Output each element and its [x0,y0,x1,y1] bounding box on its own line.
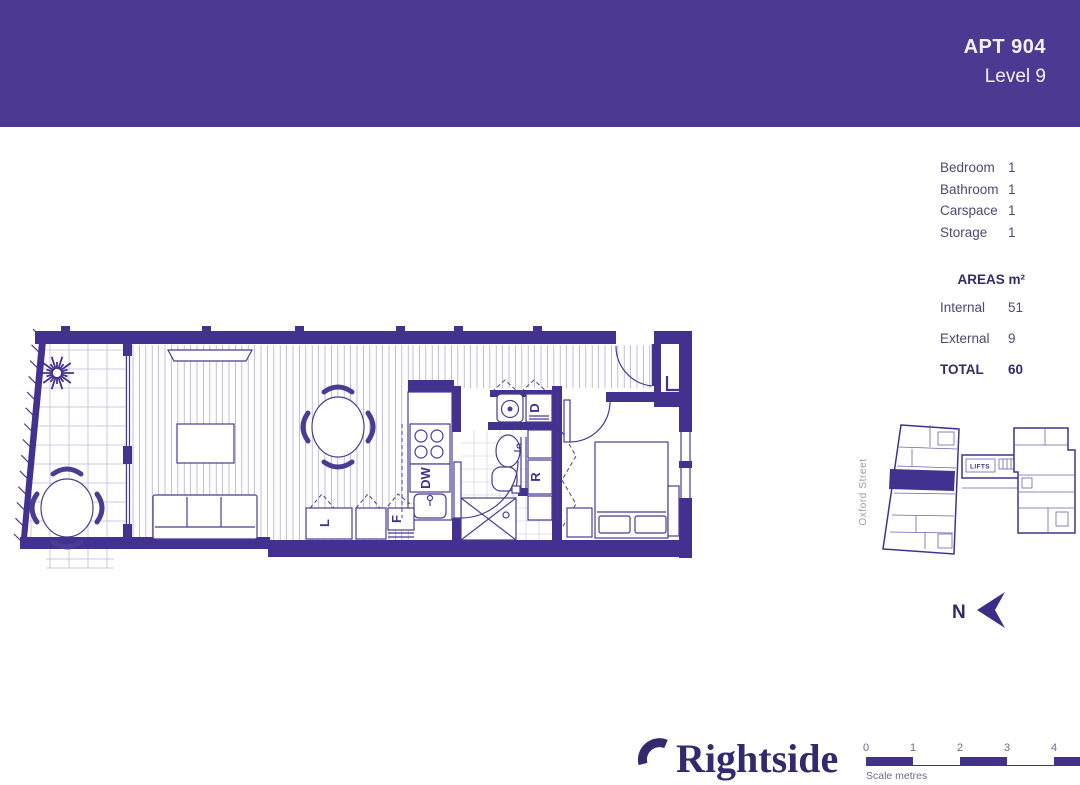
bedroom-door-leaf [564,400,570,442]
bedroom-label: Bedroom [940,157,1008,179]
carspace-label: Carspace [940,200,1008,222]
bathroom-label: Bathroom [940,179,1008,201]
key-plan: Oxford Street LIFTS [850,398,1080,580]
tv-unit [168,350,252,361]
label-dishwasher: DW [418,466,433,488]
keyplan-lift-core: LIFTS [962,455,1020,488]
sofa [153,495,257,539]
north-arrow: N [935,585,1025,635]
logo-arc-icon [642,743,666,764]
summary-row-bedroom: Bedroom 1 [940,157,1025,179]
label-laundry-cupboard: L [317,519,332,527]
total-label: TOTAL [940,356,1008,384]
terrace-tiles-lower-strip [46,549,114,568]
external-value: 9 [1008,325,1025,353]
cooktop [410,424,450,464]
areas-row-total: TOTAL 60 [940,356,1025,384]
label-dryer: D [527,403,542,412]
bedroom-door-swing [570,402,610,442]
areas-title: AREAS m² [940,269,1025,291]
terrace-table-setting [32,469,102,547]
scale-bar: 0 1 2 3 4 Scale metres [855,735,1080,785]
brand-logo: Rightside [600,722,850,785]
pillow [599,516,630,533]
bathroom [454,435,526,540]
total-value: 60 [1008,356,1025,384]
storage-label: Storage [940,222,1008,244]
label-robe: R [528,472,543,482]
street-label: Oxford Street [858,458,869,525]
scale-tick-2: 2 [957,742,963,754]
summary-row-storage: Storage 1 [940,222,1025,244]
apartment-number: APT 904 [964,36,1046,59]
bedroom [564,400,679,538]
carspace-count: 1 [1008,200,1025,222]
dining-table-setting [303,387,373,467]
highlighted-unit [889,469,955,491]
floor-plan-drawing: L F DW D R [0,318,710,572]
entry-door-swing [616,346,652,386]
scale-tick-1: 1 [910,742,916,754]
summary-row-carspace: Carspace 1 [940,200,1025,222]
level-label: Level 9 [964,66,1046,88]
internal-label: Internal [940,294,1008,322]
bedside-table-right [668,486,679,536]
bathroom-count: 1 [1008,179,1025,201]
areas-row-internal: Internal 51 [940,294,1025,322]
header-band: APT 904 Level 9 [0,0,1080,127]
floorplan-sheet: APT 904 Level 9 Bedroom 1 Bathroom 1 Car… [0,0,1080,785]
keyplan-right-wing [1014,428,1075,533]
scale-tick-0: 0 [863,742,869,754]
internal-value: 51 [1008,294,1025,322]
coffee-table [177,424,234,463]
external-label: External [940,325,1008,353]
scale-caption: Scale metres [866,770,927,782]
bedside-table-left [567,508,592,537]
scale-tick-3: 3 [1004,742,1010,754]
kitchen-cabinet [356,508,386,539]
north-label: N [952,602,966,623]
scale-tick-4: 4 [1051,742,1057,754]
lifts-label: LIFTS [970,464,990,471]
summary-row-bathroom: Bathroom 1 [940,179,1025,201]
logo-wordmark: Rightside [676,736,838,781]
areas-row-external: External 9 [940,325,1025,353]
bedroom-count: 1 [1008,157,1025,179]
north-arrow-glyph [977,592,1005,628]
storage-count: 1 [1008,222,1025,244]
pillow [635,516,666,533]
terrace-sliding-door [127,344,130,539]
label-fridge: F [389,515,404,523]
summary-panel: Bedroom 1 Bathroom 1 Carspace 1 Storage … [940,157,1025,384]
bathroom-door-leaf [454,462,461,518]
